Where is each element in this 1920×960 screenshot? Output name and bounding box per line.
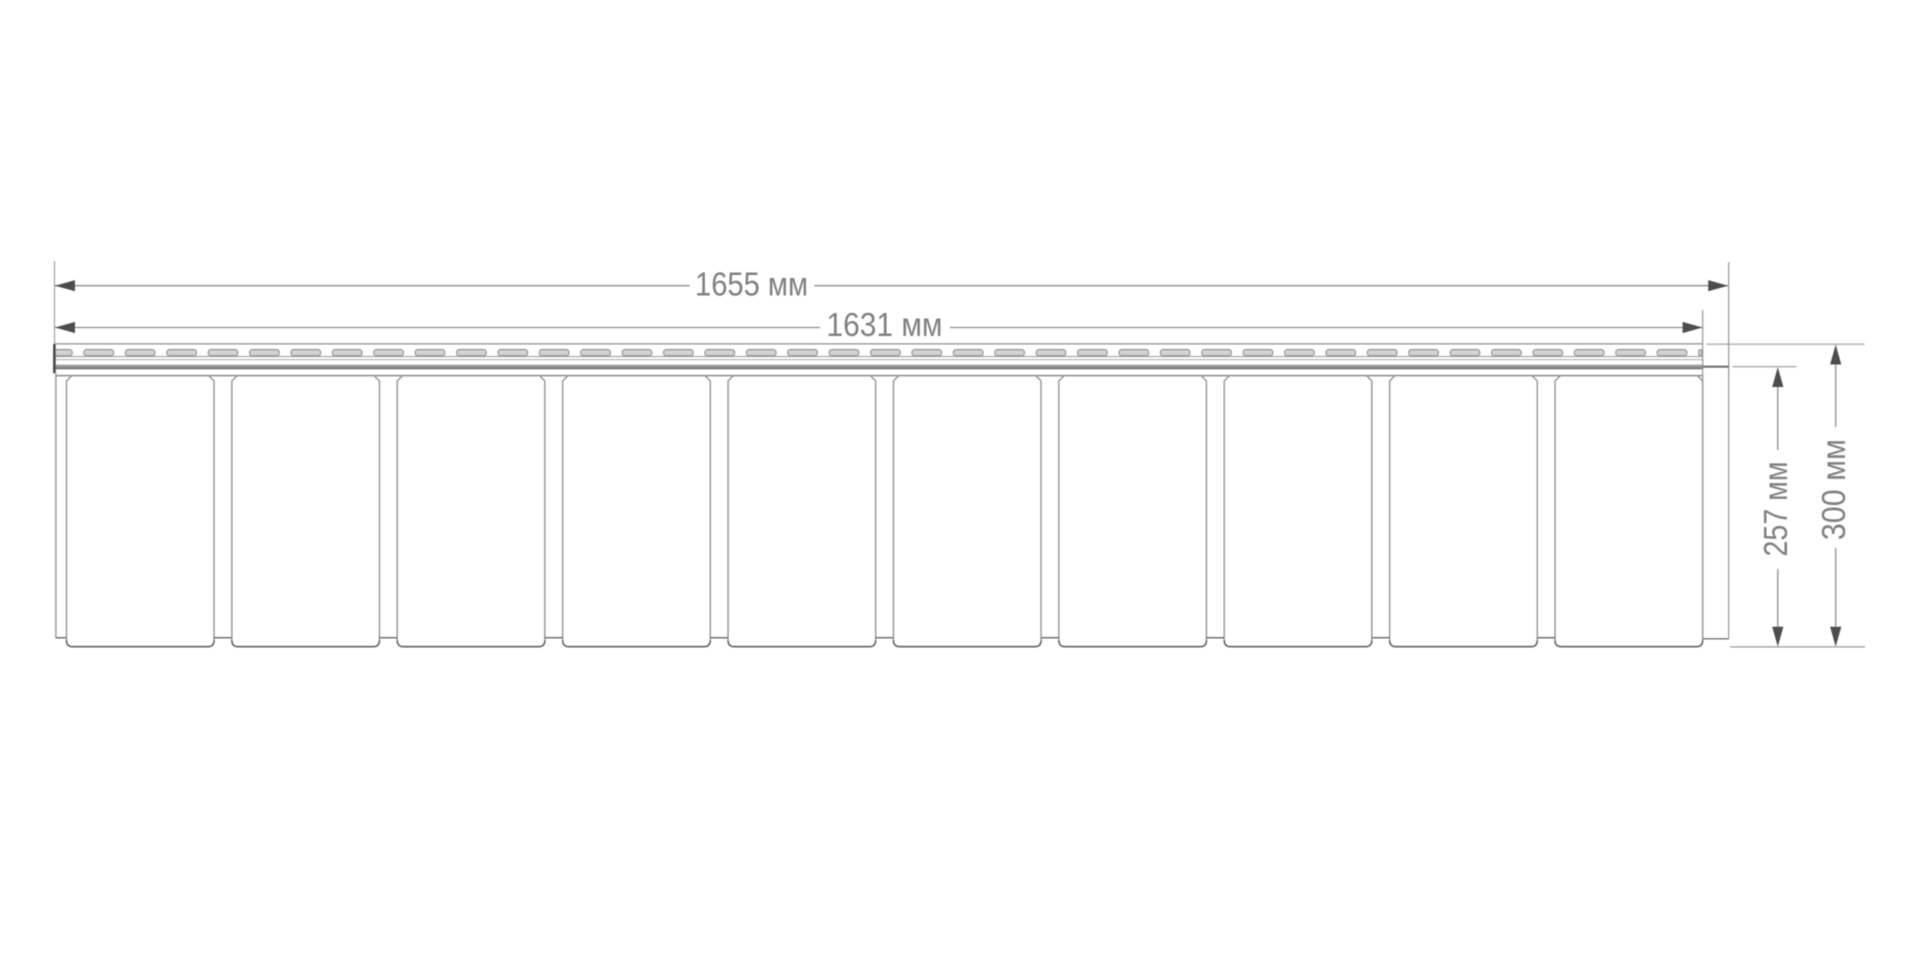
svg-text:257 мм: 257 мм — [1757, 462, 1794, 557]
svg-text:1631 мм: 1631 мм — [827, 306, 943, 343]
svg-text:300 мм: 300 мм — [1815, 439, 1852, 540]
svg-text:1655 мм: 1655 мм — [695, 266, 808, 303]
